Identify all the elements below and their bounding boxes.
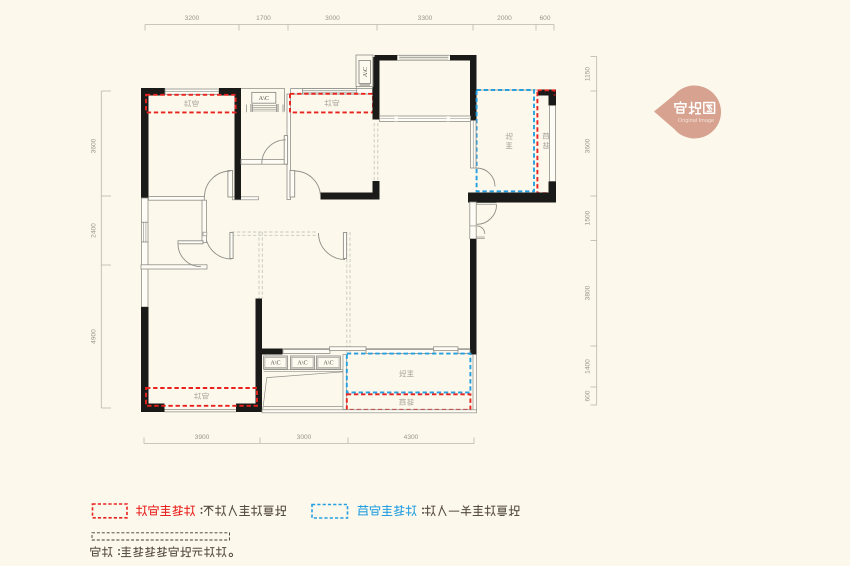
svg-text:3900: 3900	[195, 434, 210, 441]
svg-text:3000: 3000	[325, 15, 340, 22]
svg-text:3300: 3300	[418, 15, 433, 22]
svg-text:A\C: A\C	[362, 67, 369, 77]
svg-text:A\C: A\C	[323, 360, 333, 367]
svg-text:3600: 3600	[91, 138, 98, 153]
svg-text:1150: 1150	[585, 67, 592, 82]
svg-text:Original Image: Original Image	[678, 118, 714, 124]
svg-text:2000: 2000	[497, 15, 512, 22]
svg-text:600: 600	[539, 15, 550, 22]
svg-text:A\C: A\C	[270, 360, 280, 367]
svg-text:1400: 1400	[585, 359, 592, 374]
svg-text:3000: 3000	[297, 434, 312, 441]
svg-text:4300: 4300	[404, 434, 419, 441]
svg-text:1700: 1700	[256, 15, 271, 22]
svg-text:A\C: A\C	[259, 95, 269, 102]
svg-text:3600: 3600	[585, 138, 592, 153]
svg-text:2400: 2400	[91, 223, 98, 238]
svg-text:4900: 4900	[91, 329, 98, 344]
svg-text:3800: 3800	[585, 285, 592, 300]
svg-text:A\C: A\C	[297, 360, 307, 367]
svg-text:3200: 3200	[185, 15, 200, 22]
svg-text:600: 600	[585, 390, 592, 401]
svg-text:1500: 1500	[585, 210, 592, 225]
